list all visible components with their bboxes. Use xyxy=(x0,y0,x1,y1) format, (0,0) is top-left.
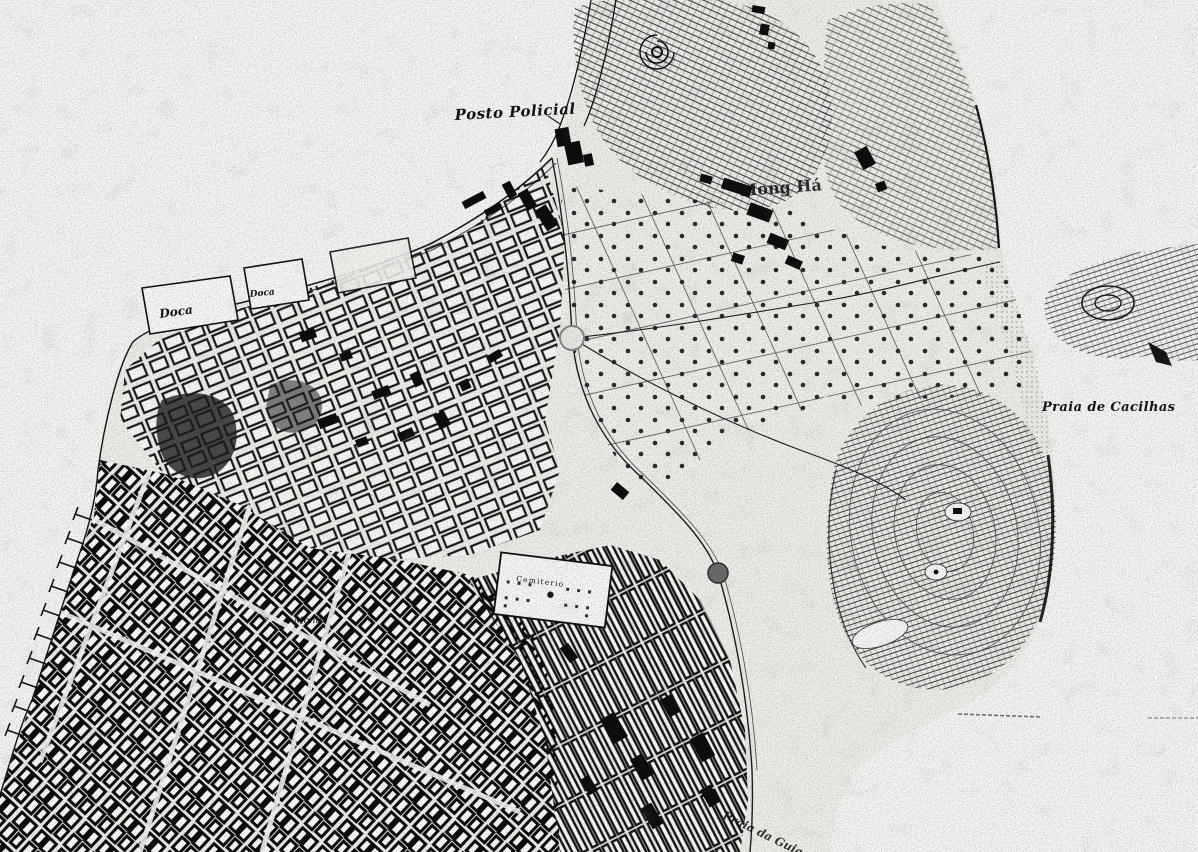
scan-grain xyxy=(0,0,1198,852)
map-svg: Posto Policial Doca Doca Mong Há Praia d… xyxy=(0,0,1198,852)
map-canvas: Posto Policial Doca Doca Mong Há Praia d… xyxy=(0,0,1198,852)
